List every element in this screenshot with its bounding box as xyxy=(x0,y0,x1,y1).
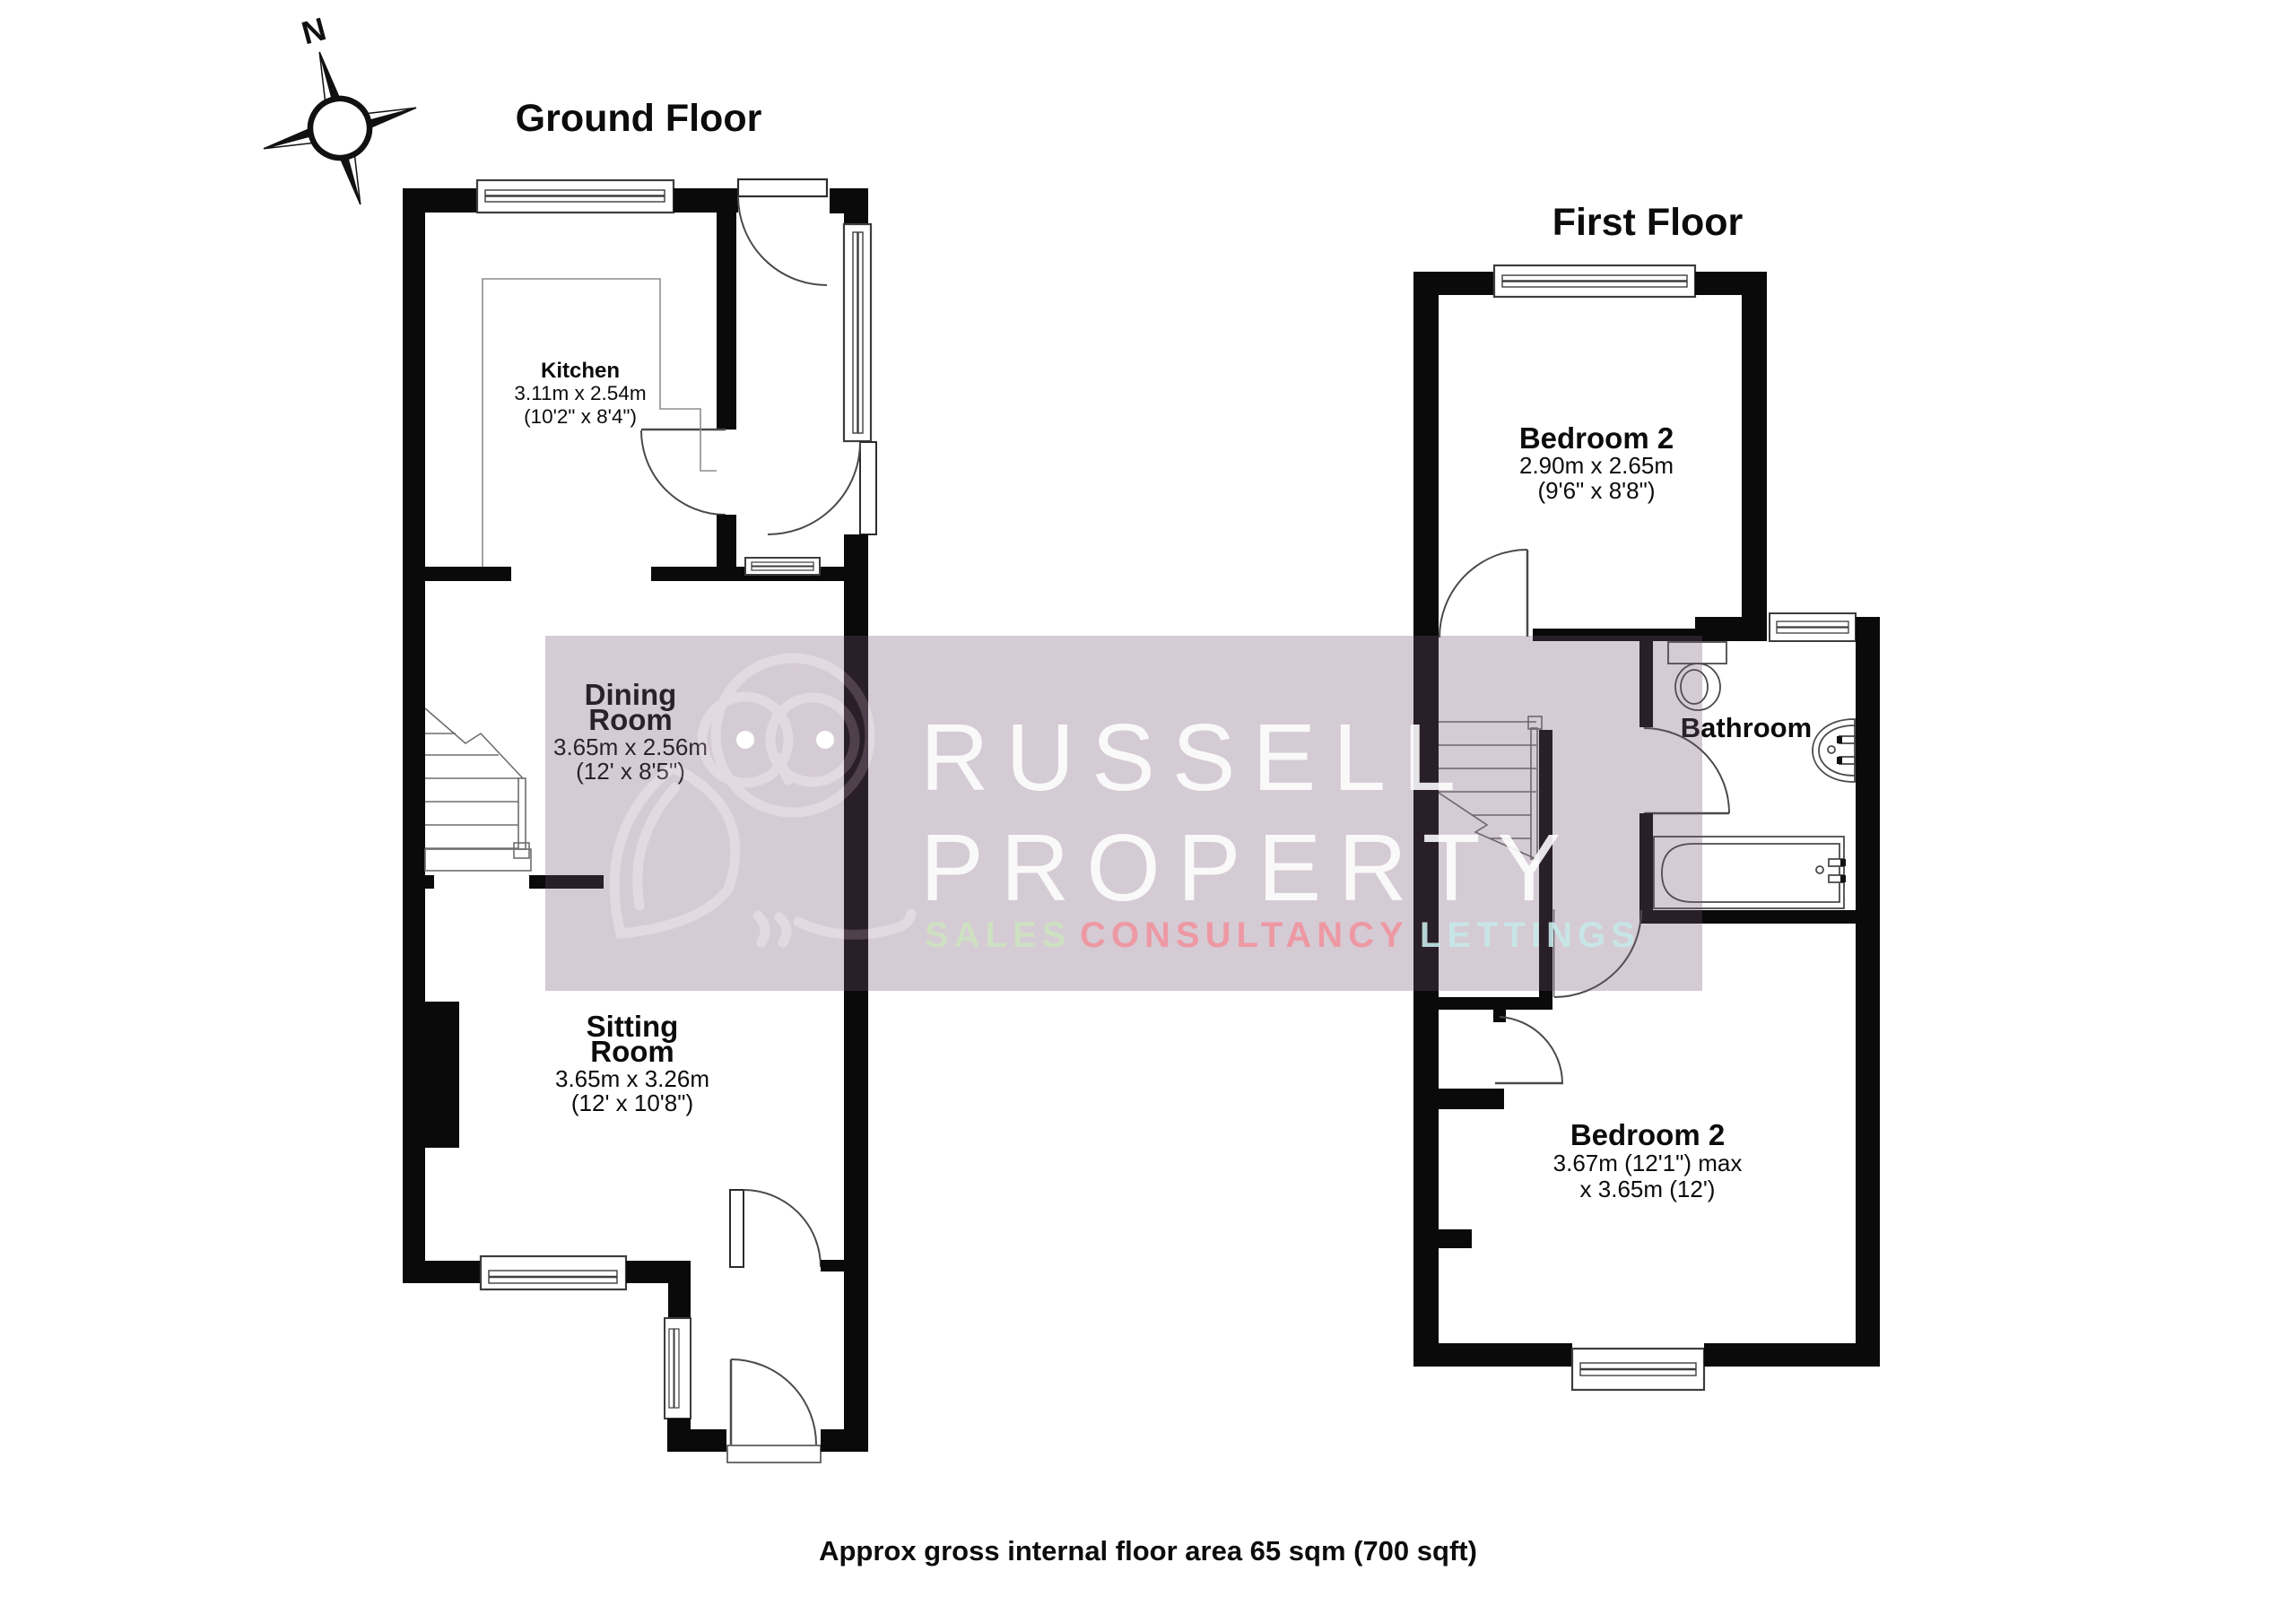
svg-text:PROPERTY: PROPERTY xyxy=(920,815,1578,921)
svg-text:3.67m (12'1") max: 3.67m (12'1") max xyxy=(1553,1150,1743,1176)
svg-text:Bedroom 2: Bedroom 2 xyxy=(1570,1118,1725,1151)
svg-text:N: N xyxy=(298,10,330,51)
svg-text:LETTINGS: LETTINGS xyxy=(1420,916,1640,955)
svg-text:CONSULTANCY: CONSULTANCY xyxy=(1080,916,1409,955)
svg-text:Bedroom 2: Bedroom 2 xyxy=(1519,421,1674,455)
svg-text:x 3.65m (12'): x 3.65m (12') xyxy=(1580,1176,1716,1202)
svg-text:First Floor: First Floor xyxy=(1552,201,1744,244)
svg-text:Ground Floor: Ground Floor xyxy=(516,97,762,140)
svg-text:3.65m x 3.26m: 3.65m x 3.26m xyxy=(555,1065,709,1092)
svg-text:Kitchen: Kitchen xyxy=(541,359,620,383)
svg-text:(12' x 10'8"): (12' x 10'8") xyxy=(571,1089,693,1116)
svg-text:(9'6" x 8'8"): (9'6" x 8'8") xyxy=(1538,477,1656,504)
svg-text:(10'2" x 8'4"): (10'2" x 8'4") xyxy=(524,405,637,428)
svg-text:3.11m x 2.54m: 3.11m x 2.54m xyxy=(514,382,646,404)
svg-text:Room: Room xyxy=(590,1035,674,1068)
svg-text:RUSSELL: RUSSELL xyxy=(920,705,1473,811)
svg-text:SALES: SALES xyxy=(925,916,1071,955)
svg-text:2.90m x 2.65m: 2.90m x 2.65m xyxy=(1519,452,1674,479)
svg-text:Approx gross internal floor ar: Approx gross internal floor area 65 sqm … xyxy=(819,1535,1477,1567)
